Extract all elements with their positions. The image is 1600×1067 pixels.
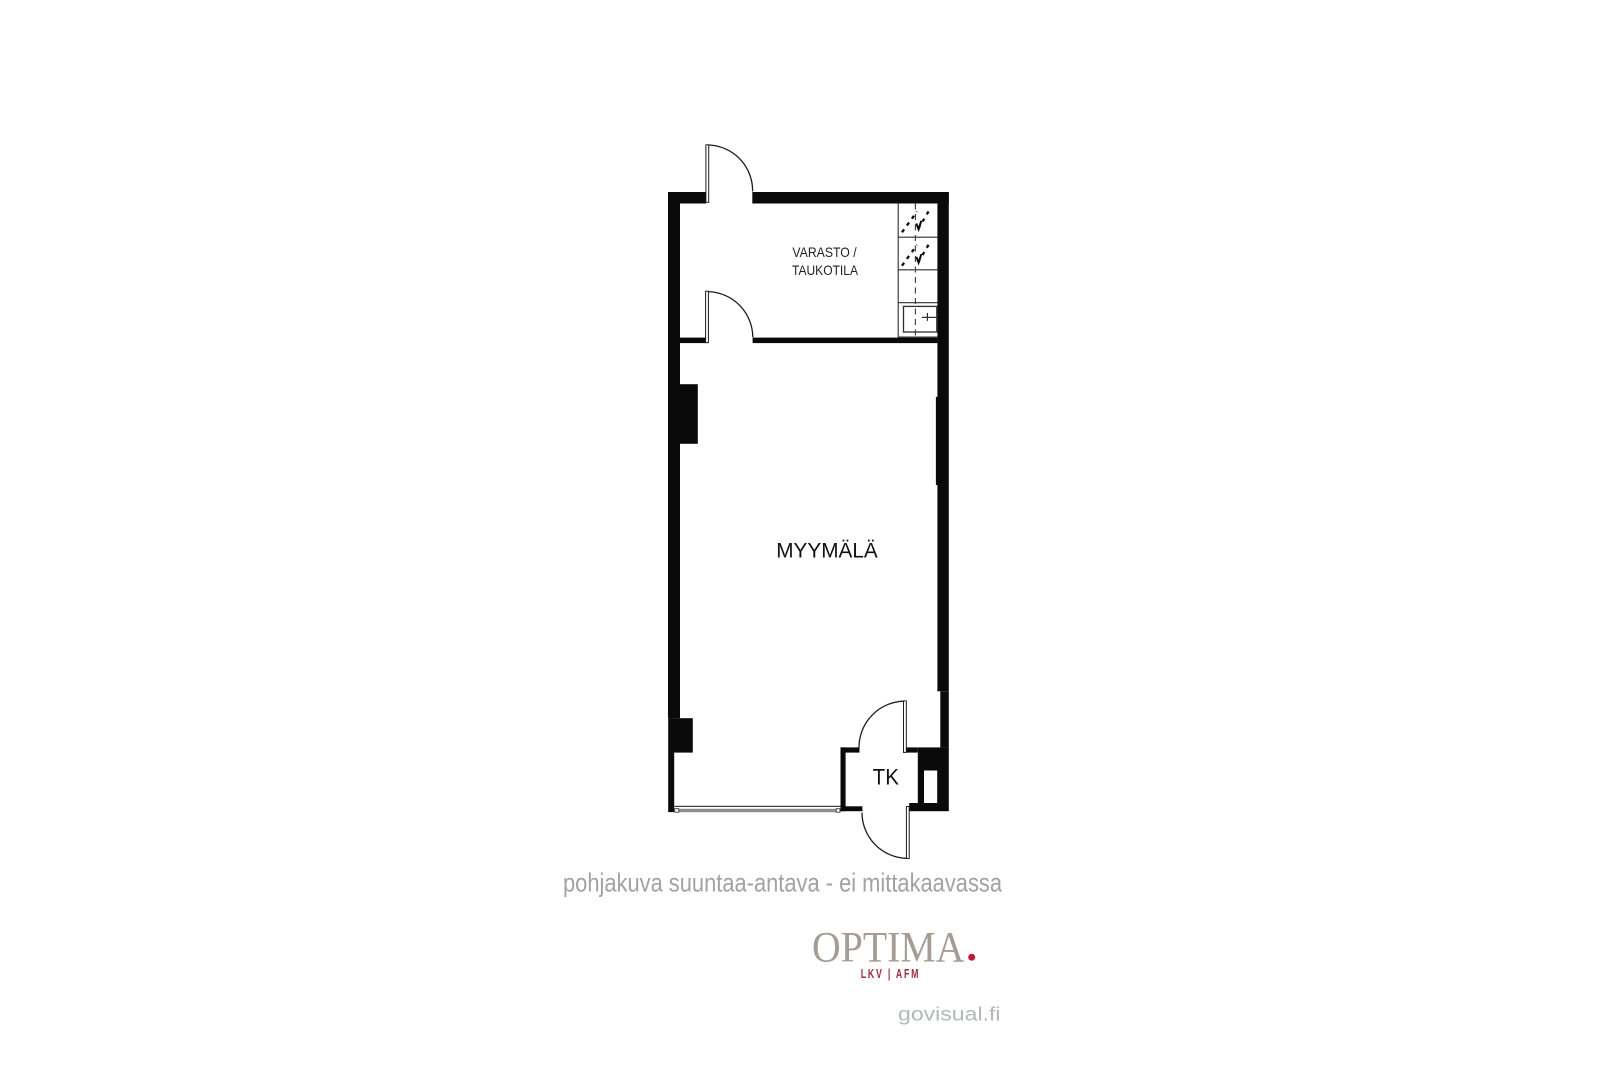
svg-text:pohjakuva suuntaa-antava - ei: pohjakuva suuntaa-antava - ei mittakaava… (563, 867, 1002, 897)
svg-text:VARASTO /: VARASTO / (792, 244, 856, 260)
svg-text:MYYMÄLÄ: MYYMÄLÄ (776, 539, 878, 562)
svg-text:TAUKOTILA: TAUKOTILA (792, 262, 859, 278)
svg-text:govisual.fi: govisual.fi (898, 1003, 1001, 1025)
svg-text:LKV | AFM: LKV | AFM (861, 967, 921, 981)
svg-text:OPTIMA: OPTIMA (812, 924, 965, 971)
svg-text:TK: TK (873, 765, 900, 790)
